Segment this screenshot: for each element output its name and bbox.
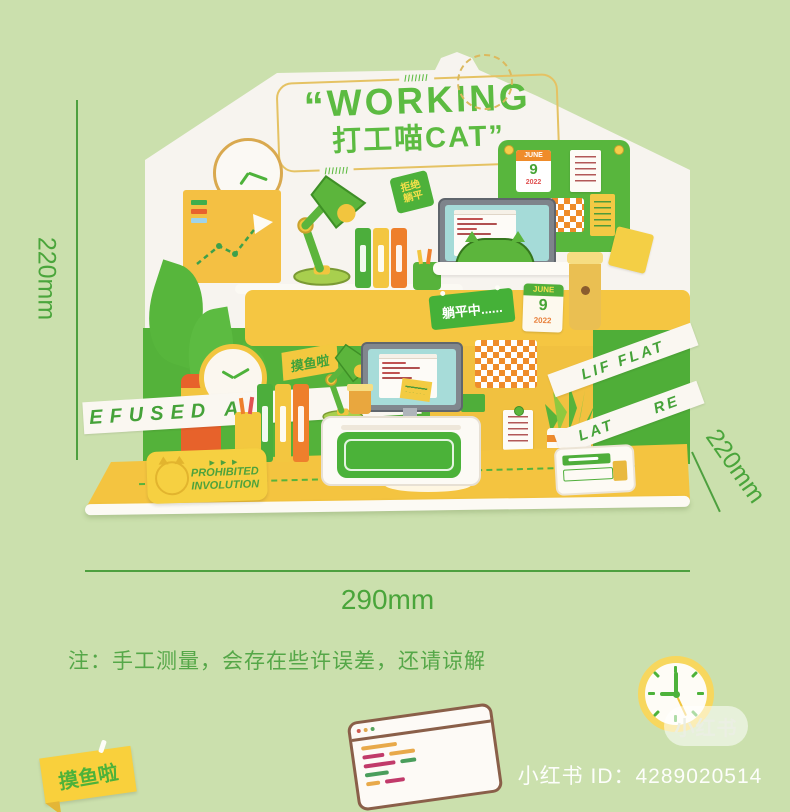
dimension-line-left [76, 100, 78, 460]
xiaohongshu-watermark: 小红书 [664, 706, 748, 746]
binder-orange [391, 228, 407, 288]
dimension-label-right: 220mm [692, 413, 779, 520]
prohibited-sign: ▶ ▶ ▶ PROHIBITED INVOLUTION [146, 448, 268, 504]
binder-yellow [373, 228, 389, 288]
product-photo: /////// “WORKING 打工喵CAT” /////// [85, 48, 690, 518]
measurement-note: 注：手工测量，会存在些许误差，还请谅解 [68, 645, 486, 675]
memo-note-2 [503, 410, 533, 450]
memo-note [570, 150, 601, 192]
dimension-label-left: 220mm [32, 219, 61, 339]
browser-illustration [346, 702, 503, 811]
binder-yellow [275, 384, 291, 462]
calendar-board: JUNE 9 2022 [516, 150, 551, 192]
drawer-green [337, 432, 461, 478]
deco-hatch-top: /////// [399, 72, 434, 83]
xiaohongshu-id: 小红书 ID：4289020514 [480, 760, 790, 790]
open-quote: “ [303, 84, 328, 129]
sticky-on-desk [400, 378, 432, 402]
calendar-desk: JUNE 9 2022 [522, 283, 564, 332]
monitor [361, 342, 463, 412]
coffee-cup-right [569, 252, 601, 330]
chart-board [183, 190, 281, 283]
trend-arrow-icon [183, 190, 281, 283]
checker-calendar-2 [475, 340, 537, 388]
dimension-label-bottom: 290mm [85, 584, 690, 616]
binder-green [355, 228, 371, 288]
coffee-cup-front [349, 384, 371, 414]
sticky-note-board [590, 194, 615, 236]
stationery-card [554, 444, 636, 496]
binder-orange [293, 384, 309, 462]
green-sticky [461, 394, 485, 412]
laptop-shelf [433, 262, 581, 275]
cat-outline-icon [154, 461, 189, 496]
screenshot-canvas: /////// “WORKING 打工喵CAT” /////// [0, 0, 790, 812]
moyu-sticker: 摸鱼啦 [39, 746, 137, 804]
dimension-line-bottom [85, 570, 690, 572]
